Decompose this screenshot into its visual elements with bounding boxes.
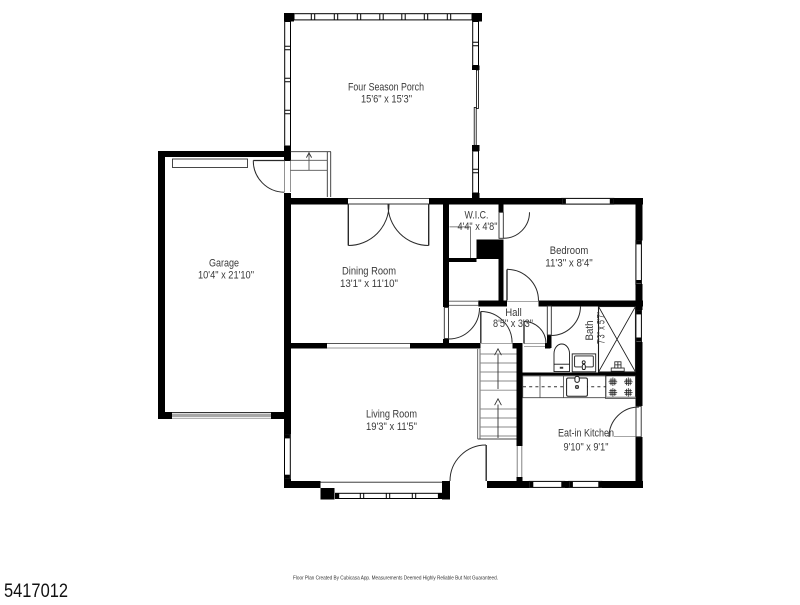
svg-text:4'4" x 4'8": 4'4" x 4'8"	[458, 221, 498, 233]
svg-text:5417012: 5417012	[4, 580, 68, 600]
svg-text:Dining Room: Dining Room	[342, 266, 396, 278]
svg-text:9'10" x 9'1": 9'10" x 9'1"	[564, 442, 609, 454]
svg-text:8'5" x 3'3": 8'5" x 3'3"	[493, 318, 533, 330]
svg-text:19'3" x 11'5": 19'3" x 11'5"	[366, 421, 417, 433]
svg-text:Garage: Garage	[209, 258, 239, 270]
svg-text:11'3" x 8'4": 11'3" x 8'4"	[545, 257, 593, 269]
svg-text:Bedroom: Bedroom	[550, 245, 589, 257]
svg-text:7'3" x 5'7": 7'3" x 5'7"	[596, 312, 608, 344]
svg-text:15'6" x 15'3": 15'6" x 15'3"	[361, 93, 412, 105]
svg-text:Four Season Porch: Four Season Porch	[348, 81, 424, 93]
svg-text:13'1" x 11'10": 13'1" x 11'10"	[340, 278, 398, 290]
svg-text:W.I.C.: W.I.C.	[465, 210, 489, 222]
svg-text:10'4" x 21'10": 10'4" x 21'10"	[198, 270, 254, 282]
svg-text:Bath: Bath	[584, 321, 596, 341]
svg-text:Living Room: Living Room	[366, 409, 417, 421]
svg-text:Eat-in Kitchen: Eat-in Kitchen	[558, 427, 614, 439]
svg-text:Floor Plan Created By Cubicasa: Floor Plan Created By Cubicasa App. Meas…	[293, 576, 498, 582]
